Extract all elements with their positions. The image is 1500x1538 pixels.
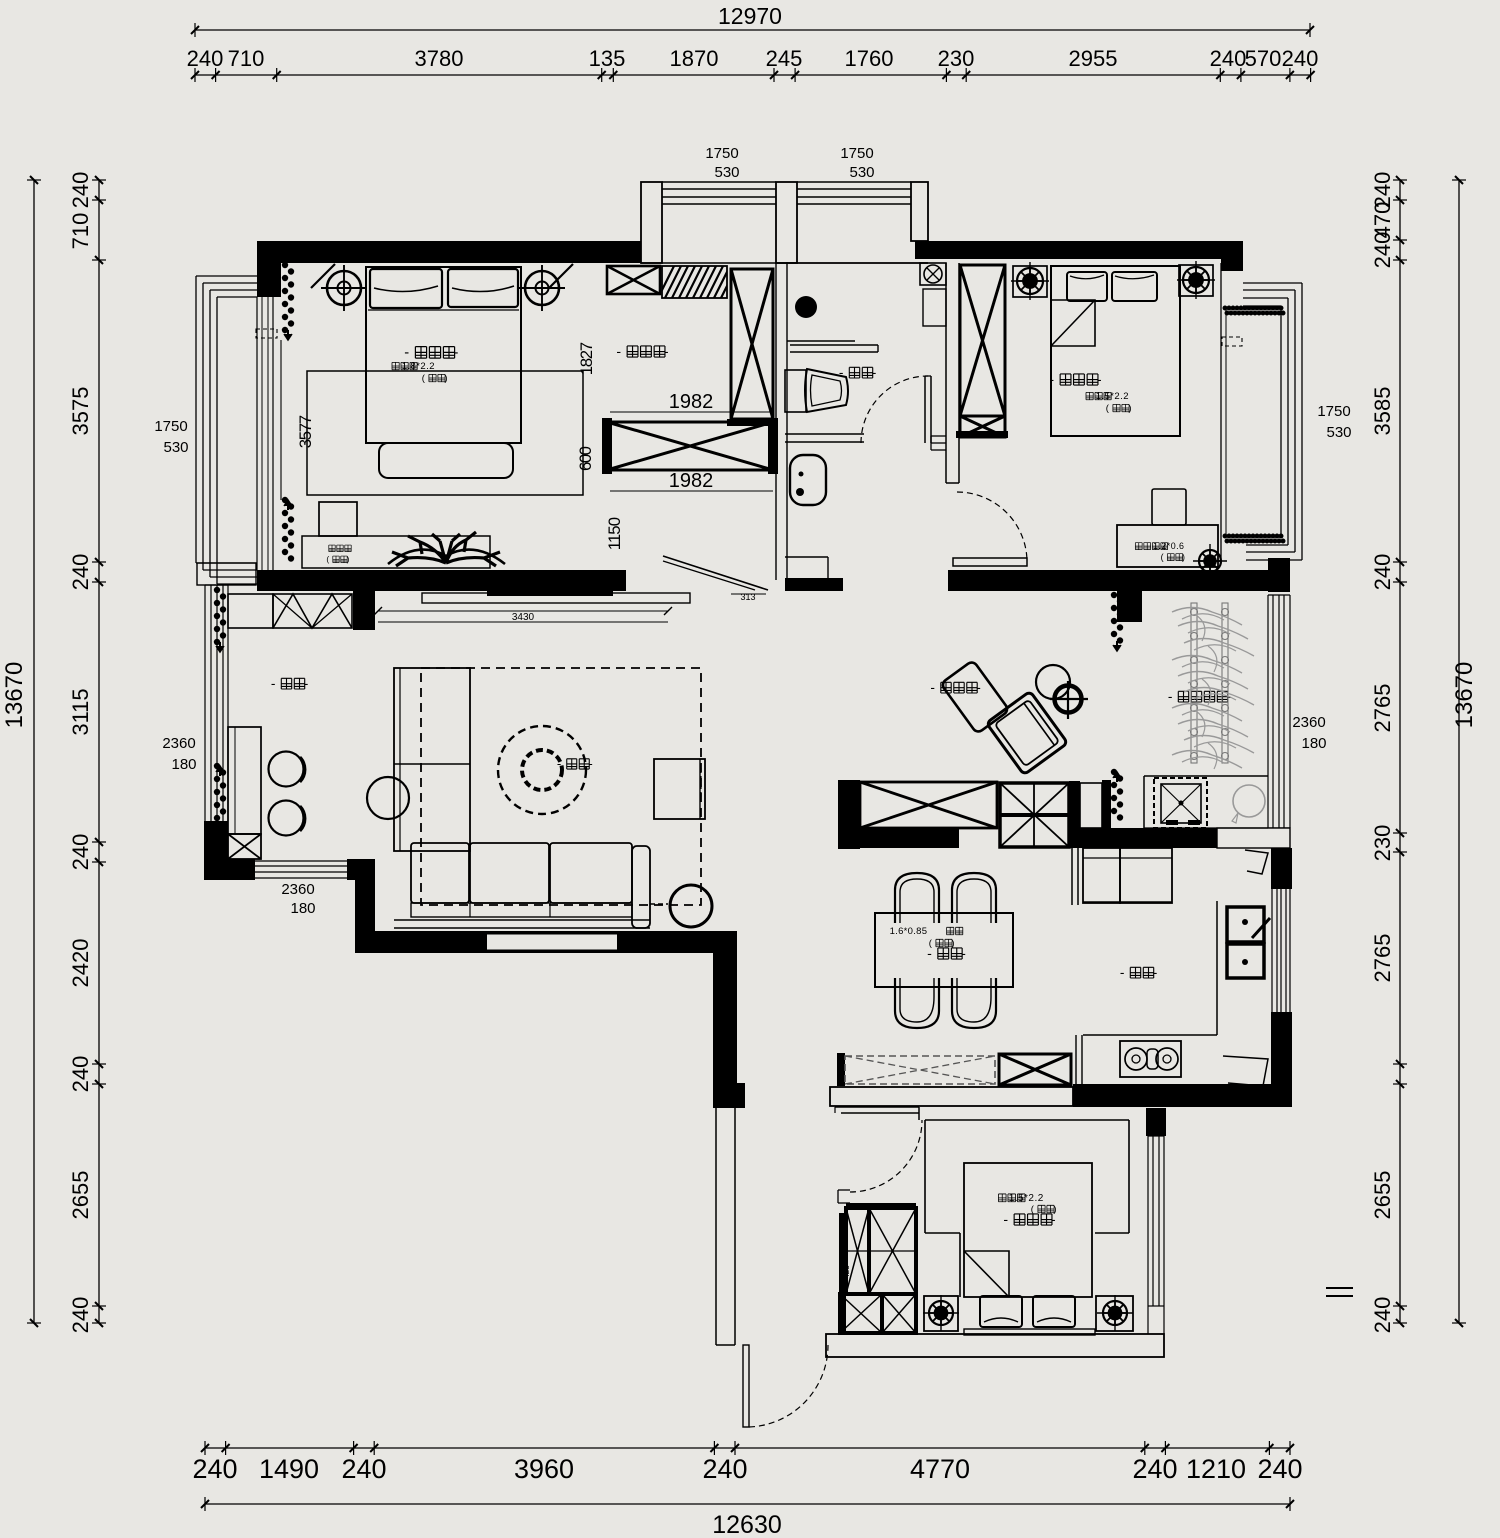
svg-text:-: - [1168, 689, 1173, 704]
svg-text:): ) [1182, 552, 1185, 562]
svg-text:-: - [839, 365, 844, 380]
svg-text:1982: 1982 [669, 391, 714, 413]
svg-text:245: 245 [766, 46, 803, 71]
svg-text:240: 240 [68, 834, 93, 871]
svg-text:1750: 1750 [705, 145, 738, 162]
svg-text:-: - [616, 344, 621, 360]
svg-text:1870: 1870 [670, 46, 719, 71]
svg-text:-: - [976, 680, 981, 695]
svg-text:240: 240 [1370, 232, 1395, 269]
svg-text:-: - [930, 680, 935, 695]
svg-text:): ) [1128, 403, 1131, 414]
svg-text:1750: 1750 [154, 418, 187, 435]
svg-text:2655: 2655 [68, 1171, 93, 1220]
svg-text:): ) [1053, 1204, 1056, 1215]
svg-text:2955: 2955 [1069, 46, 1118, 71]
svg-text:240: 240 [68, 172, 93, 209]
svg-text:3115: 3115 [68, 688, 93, 735]
svg-text:240: 240 [68, 1056, 93, 1093]
svg-text:1750: 1750 [1317, 403, 1350, 420]
svg-text:1.5*2.2: 1.5*2.2 [1096, 391, 1129, 402]
svg-text:(: ( [326, 554, 329, 564]
svg-text:240: 240 [1210, 46, 1247, 71]
svg-text:-: - [1120, 965, 1125, 980]
svg-text:1490: 1490 [259, 1454, 319, 1484]
svg-text:240: 240 [68, 554, 93, 591]
svg-text:600: 600 [576, 446, 595, 471]
svg-text:530: 530 [714, 164, 739, 181]
svg-text:240: 240 [1282, 46, 1319, 71]
svg-text:1760: 1760 [845, 46, 894, 71]
svg-text:240: 240 [1370, 1297, 1395, 1334]
svg-text:13670: 13670 [1, 662, 28, 729]
svg-text:-: - [664, 344, 669, 360]
svg-text:240: 240 [1370, 554, 1395, 591]
svg-text:): ) [347, 554, 350, 564]
svg-text:3585: 3585 [1370, 387, 1395, 436]
svg-text:240: 240 [68, 1297, 93, 1334]
svg-text:1210: 1210 [1186, 1454, 1246, 1484]
svg-text:423: 423 [842, 1265, 851, 1279]
svg-text:12970: 12970 [718, 3, 782, 29]
svg-text:-: - [1153, 965, 1158, 980]
svg-text:180: 180 [171, 756, 196, 773]
svg-text:1150: 1150 [605, 517, 624, 550]
svg-text:-: - [588, 756, 592, 771]
svg-text:2420: 2420 [68, 939, 93, 988]
svg-text:530: 530 [849, 164, 874, 181]
svg-text:2360: 2360 [1292, 714, 1325, 731]
svg-text:240: 240 [702, 1454, 747, 1484]
svg-text:3780: 3780 [415, 46, 464, 71]
svg-text:13670: 13670 [1451, 662, 1478, 729]
svg-text:240: 240 [187, 46, 224, 71]
svg-text:2655: 2655 [1370, 1171, 1395, 1220]
svg-text:135: 135 [589, 46, 626, 71]
svg-text:570: 570 [1245, 46, 1282, 71]
svg-text:710: 710 [228, 46, 265, 71]
svg-text:180: 180 [1301, 735, 1326, 752]
svg-text:-: - [454, 345, 459, 361]
svg-text:240: 240 [192, 1454, 237, 1484]
svg-text:12630: 12630 [712, 1511, 782, 1538]
svg-text:3960: 3960 [514, 1454, 574, 1484]
svg-text:-: - [872, 365, 877, 380]
svg-text:230: 230 [1370, 825, 1395, 862]
svg-text:-: - [1003, 1212, 1008, 1228]
svg-text:1.2*0.6: 1.2*0.6 [1153, 541, 1184, 551]
svg-text:(: ( [1161, 552, 1164, 562]
svg-text:240: 240 [1257, 1454, 1302, 1484]
svg-text:1750: 1750 [840, 145, 873, 162]
svg-text:3430: 3430 [512, 612, 535, 623]
svg-text:-: - [304, 676, 309, 691]
svg-text:2765: 2765 [1370, 684, 1395, 733]
svg-text:240: 240 [341, 1454, 386, 1484]
svg-text:240: 240 [1132, 1454, 1177, 1484]
svg-text:): ) [951, 938, 954, 949]
svg-text:180: 180 [290, 900, 315, 917]
svg-text:-: - [961, 946, 966, 962]
svg-text:2765: 2765 [1370, 934, 1395, 983]
svg-text:3575: 3575 [68, 387, 93, 436]
svg-text:1827: 1827 [577, 342, 596, 375]
svg-text:530: 530 [163, 439, 188, 456]
svg-text:230: 230 [938, 46, 975, 71]
svg-text:-: - [1097, 372, 1102, 388]
svg-text:710: 710 [68, 213, 93, 250]
svg-text:4770: 4770 [910, 1454, 970, 1484]
svg-text:2360: 2360 [281, 881, 314, 898]
svg-text:530: 530 [1326, 424, 1351, 441]
svg-text:1982: 1982 [669, 470, 714, 492]
svg-text:-: - [271, 676, 276, 691]
svg-text:2360: 2360 [162, 735, 195, 752]
svg-text:3577: 3577 [296, 415, 315, 448]
svg-text:1.5*2.2: 1.5*2.2 [1009, 1193, 1044, 1204]
svg-text:1.6*0.85: 1.6*0.85 [890, 926, 927, 937]
svg-text:-: - [404, 345, 409, 361]
svg-text:): ) [444, 373, 447, 384]
